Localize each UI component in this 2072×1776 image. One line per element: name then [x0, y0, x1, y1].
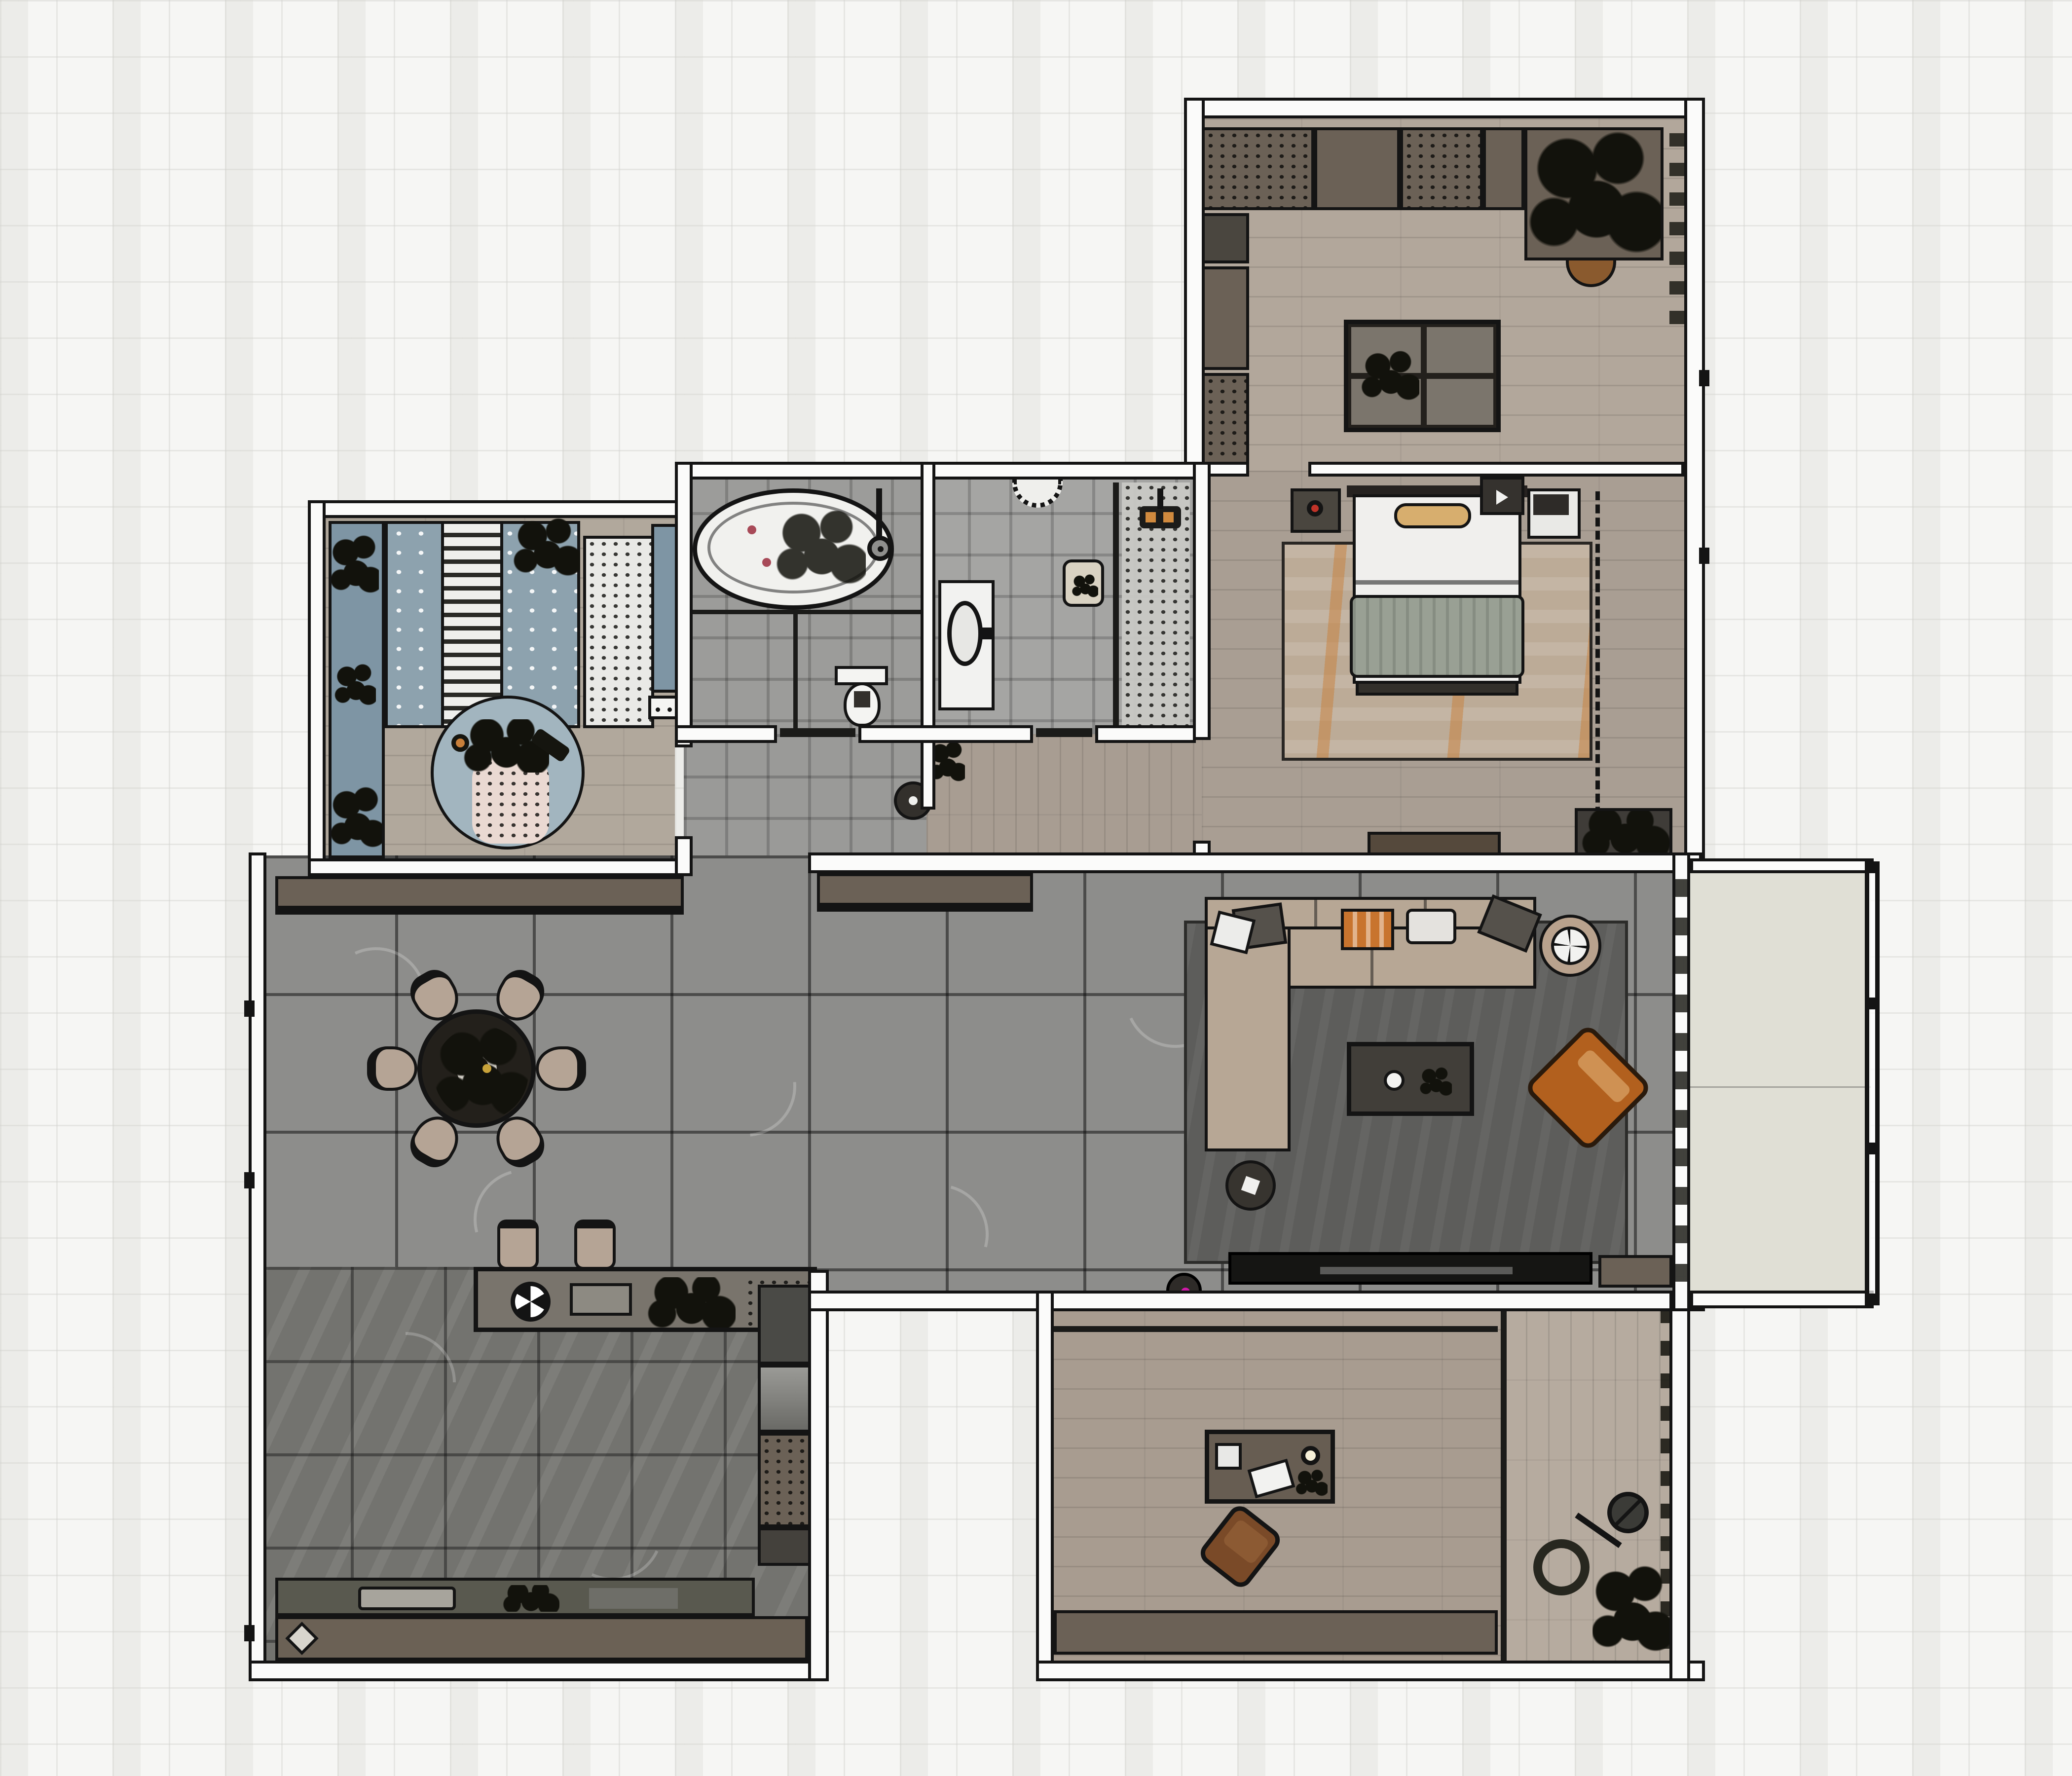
wall-bath-bottom-a: [675, 725, 777, 743]
main-balcony-floor: [1687, 864, 1871, 1302]
kitchen-tall-cabinet: [758, 1285, 811, 1365]
study-side-cabinet: [1202, 373, 1249, 465]
kids-desk-toys: [334, 663, 376, 707]
wall-wc-right-a: [1193, 462, 1211, 740]
kids-round-rug: [431, 696, 585, 850]
device-indicator: [1496, 490, 1508, 505]
railing-post: [1869, 1294, 1880, 1305]
wall-notch-top: [808, 1291, 1054, 1311]
wall-tea-right-outer: [1669, 1291, 1690, 1681]
coffee-table: [1347, 1042, 1474, 1116]
shower-head-center: [878, 546, 884, 552]
wall-kids-right-a: [675, 462, 693, 747]
fan-head: [1607, 1492, 1649, 1533]
rug-toys: [460, 719, 549, 773]
mixer-handle: [1163, 512, 1174, 522]
balcony-bottom-band: [1690, 1291, 1874, 1308]
tea-base-cabinets: [1054, 1610, 1498, 1655]
window-tick: [244, 1172, 255, 1188]
glass-wall-plants: [1675, 879, 1687, 1288]
study-side-cabinet: [1202, 213, 1249, 263]
vacuum-button: [909, 796, 918, 805]
wall-bath-bottom-b: [858, 725, 1033, 743]
sideboard-row-right: [817, 873, 1033, 912]
balcony-top-band: [1690, 858, 1874, 873]
kitchen-base-cabinets: [275, 1616, 808, 1661]
nightstand-lamp-red: [1307, 500, 1323, 517]
sideboard-row-left: [275, 876, 684, 915]
kids-blue-cabinet: [651, 524, 678, 693]
bath-mat: [1063, 559, 1104, 607]
fan-base-ring: [1533, 1539, 1590, 1595]
window-tick: [244, 1625, 255, 1641]
wall-tea-left: [1036, 1291, 1054, 1681]
bath-petal-red: [747, 525, 756, 534]
wall-study-bedroom-b: [1308, 462, 1684, 477]
wall-study-top: [1184, 98, 1705, 118]
wall-kids-top: [308, 500, 681, 518]
kitchen-worktop-row: [275, 1578, 755, 1616]
wall-kitchen-right: [808, 1270, 829, 1681]
wall-outer-right-upper: [1684, 98, 1705, 873]
tea-set: [1360, 351, 1419, 401]
kids-knob-box: [648, 696, 678, 719]
bar-chair: [497, 1220, 539, 1270]
bed-blanket: [1350, 595, 1524, 678]
knob: [656, 707, 660, 712]
bedroom-corner-device: [1480, 477, 1524, 515]
sofa-cushion-orange: [1341, 909, 1394, 950]
study-wall-cabinet: [1314, 127, 1400, 210]
bath-petals: [774, 511, 866, 585]
wall-kids-left: [308, 500, 326, 876]
food-accent: [482, 1064, 491, 1073]
kids-wardrobe: [583, 536, 654, 728]
side-table-round: [1225, 1160, 1276, 1211]
wardrobe-dashed-front: [1595, 491, 1600, 829]
railing-post: [1869, 998, 1880, 1009]
toy-ring: [451, 734, 469, 752]
island-tray: [570, 1283, 632, 1316]
shower-pole: [876, 488, 882, 539]
bed-sheet-fold: [1356, 580, 1518, 585]
wall-outer-left: [249, 852, 266, 1681]
mixer-pipe: [1157, 488, 1163, 509]
sink-diamond-icon: [285, 1622, 319, 1655]
railing-post: [1869, 1143, 1880, 1154]
wall-hall-bottom: [1036, 1291, 1705, 1311]
coffee-kettle: [1419, 1067, 1452, 1097]
toilet-bowl: [844, 682, 881, 727]
desk-speaker: [1215, 1443, 1242, 1470]
wall-kids-right-b: [675, 836, 693, 876]
wall-bath-top: [675, 462, 1196, 480]
wall-vestibule-divider: [921, 736, 935, 810]
sofa-cushion-light: [1406, 909, 1456, 944]
knob: [667, 707, 672, 712]
bathtub: [693, 488, 894, 610]
study-window-plants: [1669, 133, 1684, 340]
door-sill-wc: [1036, 728, 1092, 737]
wall-study-left: [1184, 98, 1205, 471]
kids-bed-toys: [512, 518, 580, 577]
bed-pillow: [1394, 503, 1471, 528]
mat-items: [1072, 574, 1098, 598]
glass-partition-v: [793, 610, 798, 728]
round-dining-table: [417, 1009, 536, 1128]
kids-chair: [332, 784, 382, 852]
study-wall-cabinet: [1202, 127, 1314, 210]
window-tick: [1699, 370, 1709, 386]
desk-papers: [1247, 1459, 1295, 1499]
sofa-chaise: [1205, 926, 1291, 1151]
bath-petal-red: [762, 558, 771, 567]
mixer-handle: [1146, 512, 1156, 522]
island-cookware: [644, 1277, 736, 1328]
wall-bath-bottom-c: [1095, 725, 1196, 743]
wall-tea-bottom: [1036, 1661, 1705, 1681]
island-sink: [511, 1282, 551, 1322]
coffee-bowl: [1384, 1070, 1405, 1091]
dishes: [434, 1026, 528, 1120]
glass-partition-h: [687, 610, 926, 614]
study-side-cabinet: [1202, 266, 1249, 370]
kids-desk-toys: [332, 533, 379, 598]
table-panel: [1427, 379, 1493, 425]
toilet-seat: [854, 691, 870, 707]
tea-desk: [1205, 1430, 1335, 1504]
hall-side-cabinet: [1598, 1255, 1672, 1288]
table-panel: [1427, 327, 1493, 373]
corridor-floor: [926, 734, 1202, 858]
study-table: [1344, 320, 1501, 432]
floor-plan-canvas: apartment-floor-plan-top-view: [0, 0, 2072, 1776]
wall-bath-divider: [921, 462, 935, 736]
dining-chair: [367, 1046, 417, 1091]
vanity-basin: [947, 601, 983, 666]
strip-divider-wall: [1501, 1299, 1507, 1669]
window-tick: [1699, 548, 1709, 564]
balcony-railing: [1865, 861, 1880, 1305]
kitchen-tall-cabinet: [758, 1365, 811, 1433]
study-planter-box: [1524, 127, 1664, 260]
study-wall-cabinet: [1483, 127, 1524, 210]
sliding-door-track: [1051, 1326, 1498, 1332]
kitchen-tall-cabinet: [758, 1433, 811, 1527]
wall-hall-top: [808, 852, 1702, 873]
tv-panel: [1320, 1267, 1513, 1274]
bed-bench: [1356, 681, 1518, 696]
shower-head: [867, 536, 892, 561]
nightstand-right-device: [1533, 494, 1569, 515]
desk-items: [1295, 1470, 1328, 1496]
worktop-items: [500, 1585, 559, 1612]
window-tick: [244, 1000, 255, 1017]
bedroom-corner-mat: [1575, 808, 1672, 858]
worktop-tray: [358, 1587, 456, 1610]
wall-kids-bottom: [308, 858, 690, 876]
vestibule-floor: [684, 734, 929, 861]
railing-post: [1869, 861, 1880, 873]
balcony-floor-seam: [1687, 1086, 1871, 1088]
door-sill-bath: [780, 728, 855, 737]
shower-mixer: [1140, 506, 1181, 528]
wall-kitchen-bottom: [249, 1661, 829, 1681]
balcony-plant: [1592, 1563, 1669, 1658]
tea-chair-cushion: [1221, 1518, 1270, 1565]
living-tv-console: [1228, 1252, 1592, 1285]
kitchen-tall-cabinet: [758, 1527, 811, 1566]
vanity-faucet: [980, 628, 995, 639]
study-wall-cabinet: [1400, 127, 1483, 210]
worktop-board: [589, 1588, 678, 1609]
side-table-item: [1241, 1176, 1260, 1195]
desk-lamp: [1301, 1446, 1320, 1465]
dining-chair: [536, 1046, 586, 1091]
glass-partition-v2: [1113, 482, 1119, 728]
ring-table: [1542, 918, 1598, 974]
bar-chair: [574, 1220, 616, 1270]
